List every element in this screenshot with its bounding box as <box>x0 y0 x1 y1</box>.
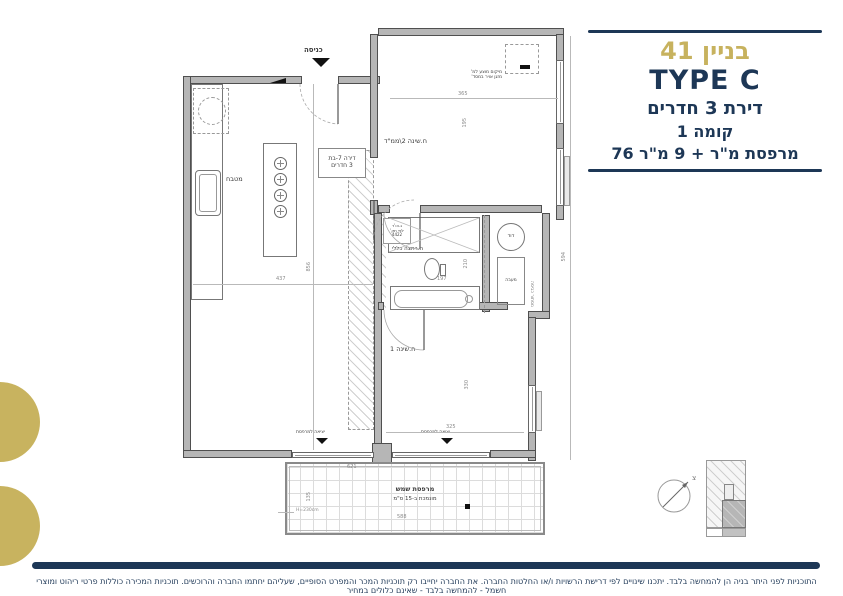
brochure-page: בניין 41 TYPE C דירת 3 חדרים קומה 1 76 מ… <box>0 0 843 596</box>
door-swing-overlay <box>178 18 578 548</box>
footer-rule <box>32 562 820 569</box>
key-plan-unit-highlight <box>722 500 746 528</box>
key-plan-base-unit <box>722 528 746 537</box>
title-bottom-rule <box>588 169 822 172</box>
title-top-rule <box>588 30 822 33</box>
title-block: בניין 41 TYPE C דירת 3 חדרים קומה 1 76 מ… <box>588 30 822 172</box>
area-line: 76 מ"ר + 9 מ"ר‎ מרפסת <box>588 144 822 163</box>
key-plan <box>706 460 746 538</box>
building-name: בניין 41 <box>588 37 822 65</box>
north-label: צ <box>692 474 696 482</box>
rooms-line: דירת 3 חדרים <box>588 98 822 119</box>
disclaimer-text: התוכניות לפני היתר בניה הן להמחשה בלבד. … <box>28 577 825 595</box>
apartment-type: TYPE C <box>588 65 822 96</box>
floor-line: קומה 1 <box>588 122 822 141</box>
floor-plan: מרפסת שמש מונמכת ב-15 ס"מ <box>178 18 578 548</box>
gold-semicircle-decoration <box>0 486 40 566</box>
key-plan-step <box>724 484 734 500</box>
gold-semicircle-decoration <box>0 382 40 462</box>
